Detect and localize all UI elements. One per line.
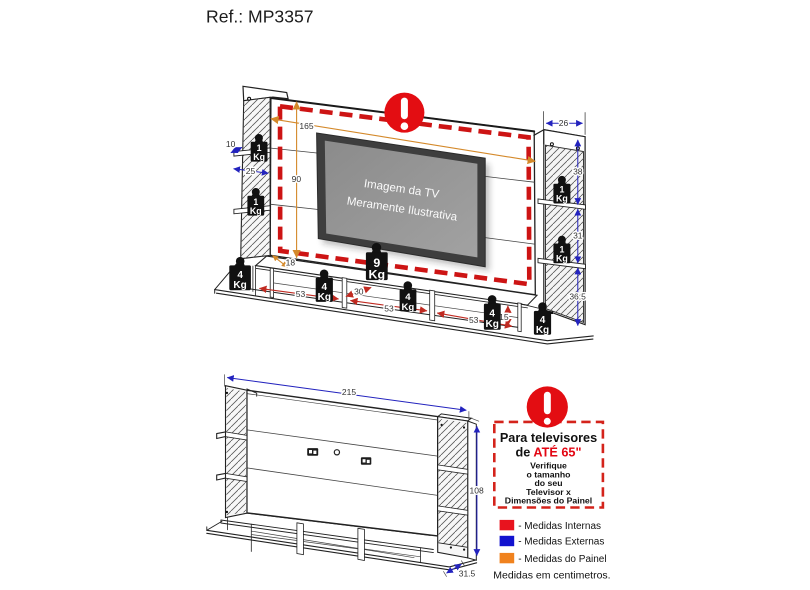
svg-text:Kg: Kg — [318, 292, 331, 303]
svg-text:25: 25 — [246, 166, 256, 176]
svg-text:31: 31 — [573, 230, 583, 240]
svg-text:165: 165 — [299, 121, 313, 131]
svg-text:4: 4 — [489, 308, 495, 319]
svg-text:Para televisores: Para televisores — [500, 431, 597, 445]
svg-text:90: 90 — [292, 174, 302, 184]
svg-text:Dimensões do Painel: Dimensões do Painel — [505, 496, 592, 506]
svg-text:Medidas em centimetros.: Medidas em centimetros. — [493, 570, 610, 582]
svg-text:18: 18 — [286, 257, 296, 267]
svg-text:- Medidas Internas: - Medidas Internas — [518, 521, 601, 532]
svg-text:108: 108 — [470, 485, 484, 495]
svg-text:10: 10 — [226, 139, 236, 149]
svg-text:Kg: Kg — [253, 152, 265, 162]
svg-text:26: 26 — [559, 118, 569, 128]
svg-text:36.5: 36.5 — [569, 292, 586, 302]
svg-text:31.5: 31.5 — [459, 568, 476, 578]
svg-text:- Medidas Externas: - Medidas Externas — [518, 537, 604, 548]
svg-text:Kg: Kg — [556, 194, 568, 204]
svg-text:- Medidas do Painel: - Medidas do Painel — [518, 554, 606, 565]
svg-text:38: 38 — [573, 167, 583, 177]
svg-text:Kg: Kg — [486, 319, 499, 330]
svg-text:Kg: Kg — [402, 302, 415, 313]
svg-text:215: 215 — [342, 387, 356, 397]
svg-text:53: 53 — [296, 289, 306, 299]
svg-text:53: 53 — [384, 303, 394, 313]
svg-text:Kg: Kg — [536, 325, 549, 336]
svg-text:Kg: Kg — [556, 254, 568, 264]
svg-text:de ATÉ 65": de ATÉ 65" — [516, 444, 582, 459]
svg-text:53: 53 — [469, 315, 479, 325]
svg-text:30: 30 — [354, 286, 364, 296]
svg-text:Kg: Kg — [369, 268, 386, 282]
svg-text:Kg: Kg — [250, 206, 262, 216]
svg-text:Kg: Kg — [233, 280, 246, 291]
svg-text:Ref.: MP3357: Ref.: MP3357 — [206, 7, 314, 27]
